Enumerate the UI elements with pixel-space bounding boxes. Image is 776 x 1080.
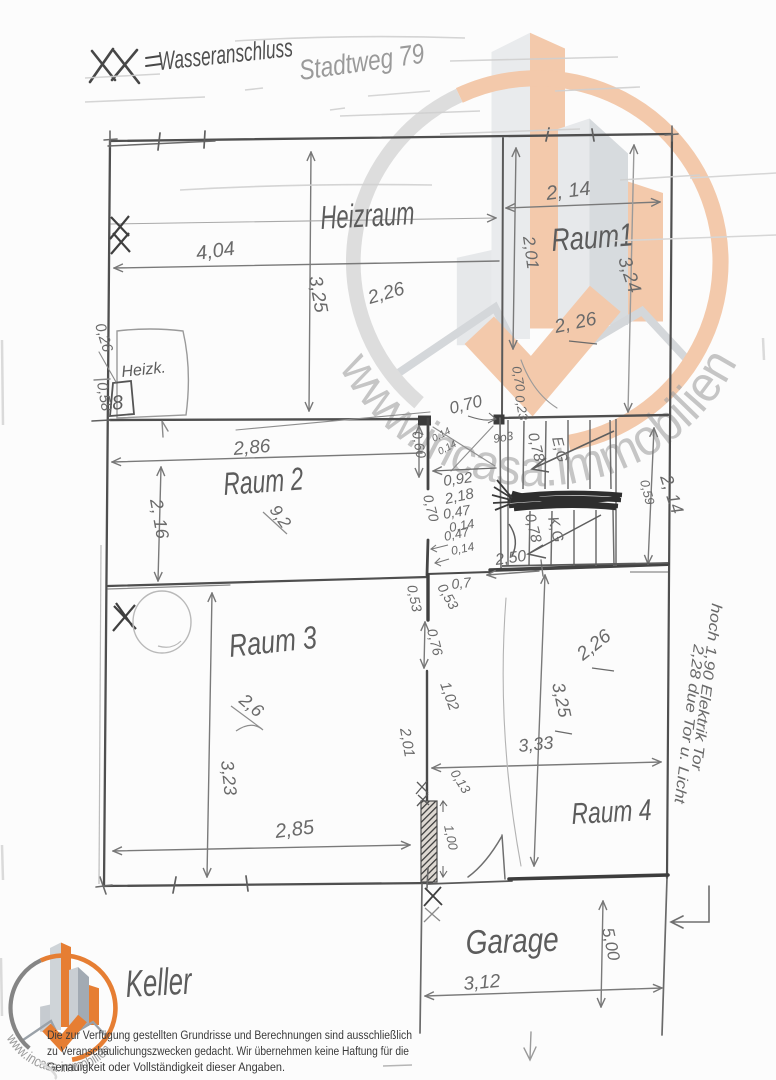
svg-text:3,33: 3,33: [517, 732, 554, 756]
svg-text:Raum 4: Raum 4: [571, 794, 653, 831]
svg-text:Garage: Garage: [465, 921, 559, 962]
svg-text:Die zur Verfügung gestellten G: Die zur Verfügung gestellten Grundrisse …: [47, 1028, 412, 1042]
svg-text:zu Veranschaulichungszwecken g: zu Veranschaulichungszwecken gedacht. Wi…: [47, 1044, 409, 1058]
svg-text:2,86: 2,86: [232, 436, 272, 460]
svg-text:3,23: 3,23: [217, 759, 241, 796]
svg-text:Genauigkeit oder Vollständigke: Genauigkeit oder Vollständigkeit dieser …: [47, 1060, 285, 1074]
svg-text:Raum1: Raum1: [550, 216, 634, 258]
svg-text:Raum 2: Raum 2: [222, 460, 304, 502]
svg-text:Keller: Keller: [125, 961, 194, 1006]
svg-text:Heizraum: Heizraum: [319, 194, 415, 236]
svg-text:3,12: 3,12: [463, 971, 502, 995]
